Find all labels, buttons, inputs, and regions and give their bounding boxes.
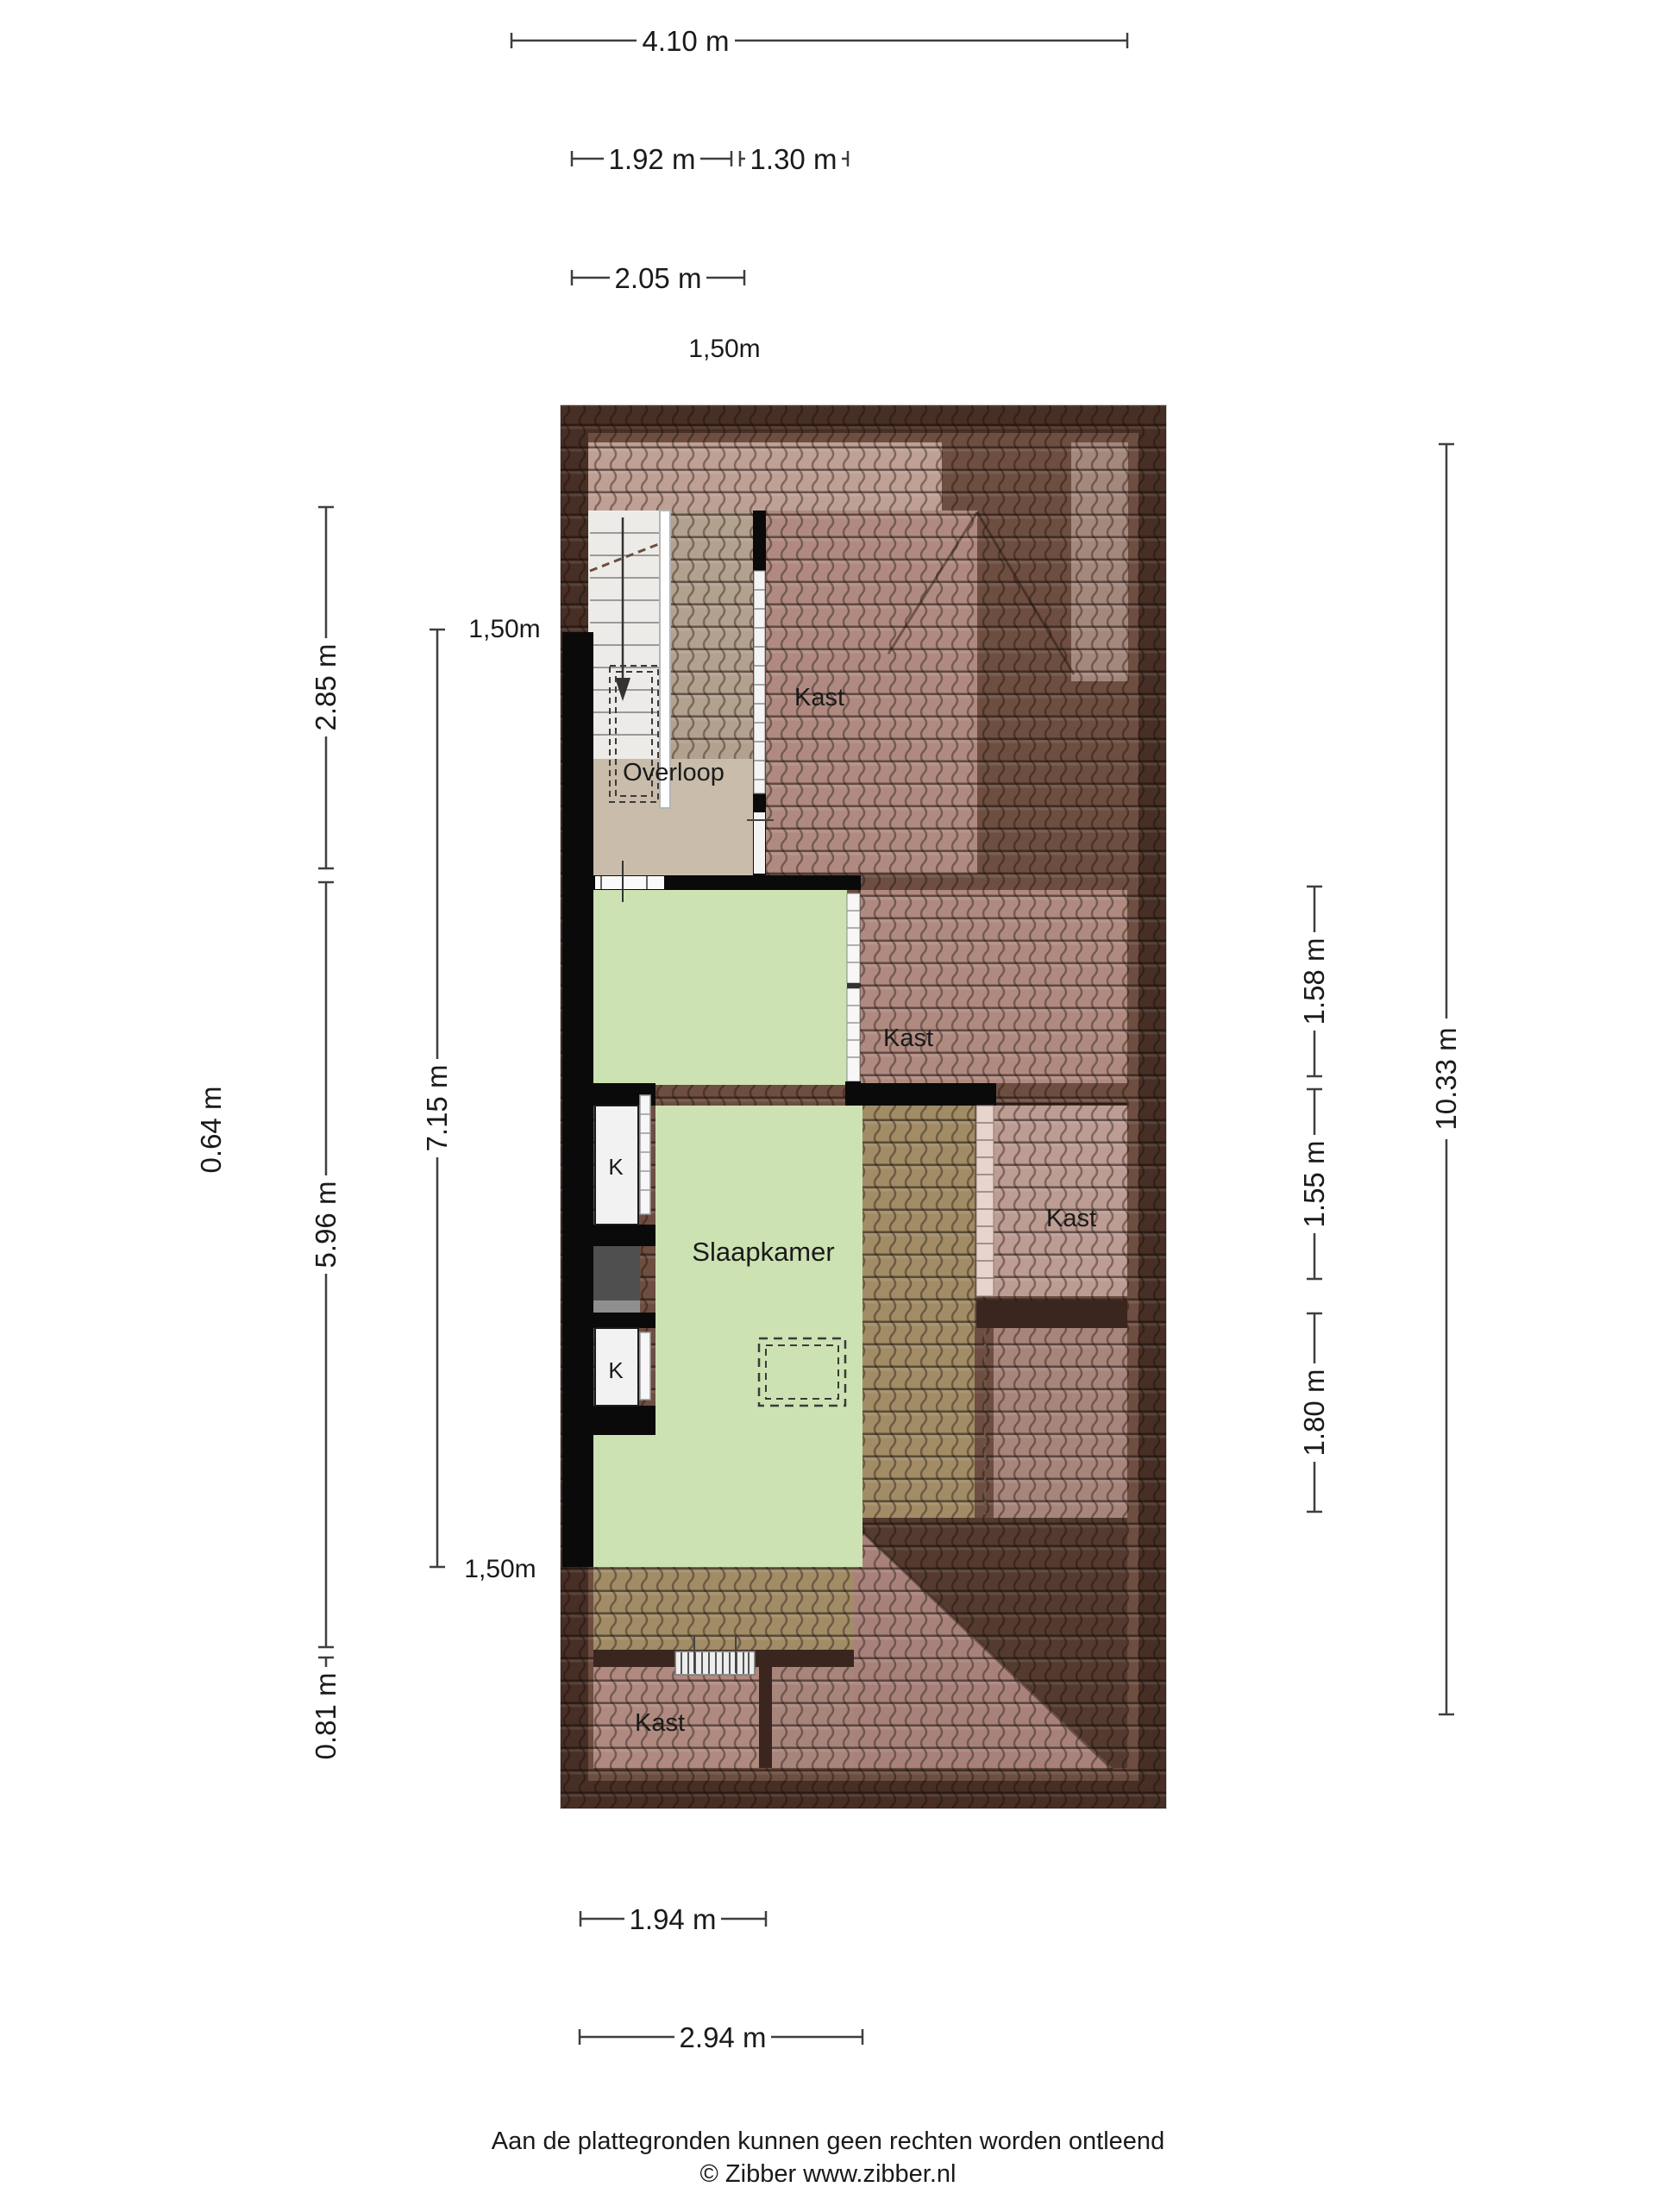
- dimension-bottom-294: 2.94 m: [580, 2021, 862, 2053]
- dimension-top-205: 2.05 m: [572, 262, 744, 294]
- window-slaapkamer-right-2: [847, 988, 860, 1081]
- dimension-label: 7.15 m: [421, 1065, 453, 1152]
- dimension-label: 1.92 m: [609, 143, 696, 175]
- dimension-label: 4.10 m: [643, 25, 730, 57]
- closet-window-strip: [640, 1095, 650, 1214]
- window-mullion: [847, 983, 860, 988]
- dimension-left-715: 7.15 m: [421, 630, 453, 1567]
- dimension-label: 1.94 m: [630, 1903, 717, 1935]
- dimension-bottom-194: 1.94 m: [580, 1903, 766, 1935]
- dimension-top-410: 4.10 m: [511, 25, 1127, 57]
- footer-copyright: © Zibber www.zibber.nl: [700, 2160, 957, 2188]
- wall-kast-bottom: [759, 1664, 772, 1768]
- wall-kast-right-lower: [976, 1300, 1127, 1328]
- contour-label-top: 1,50m: [688, 335, 760, 363]
- closet-label-k-upper: K: [608, 1154, 624, 1180]
- dimension-label: 2.94 m: [680, 2021, 767, 2053]
- room-label-slaapkamer: Slaapkamer: [692, 1237, 834, 1267]
- dimension-label: 1.55 m: [1298, 1141, 1330, 1228]
- slaapkamer-floor-mid: [655, 1106, 862, 1435]
- dimension-label: 2.05 m: [615, 262, 702, 294]
- dimension-left-064: 0.64 m: [195, 1087, 227, 1174]
- closet-window-strip: [640, 1332, 650, 1400]
- dimension-label: 0.64 m: [195, 1087, 227, 1174]
- slaapkamer-floor-bottom: [593, 1435, 862, 1567]
- closet-label-k-lower: K: [608, 1357, 624, 1383]
- room-label-kast-right-lower: Kast: [1046, 1205, 1096, 1232]
- dimension-top-192: 1.92 m: [572, 143, 731, 175]
- room-label-kast-right-upper: Kast: [883, 1025, 933, 1052]
- floorplan-canvas: Overloop Kast Slaapkamer Kast Kast Kast …: [0, 0, 1656, 2208]
- wall-corner-block: [845, 1081, 861, 1106]
- dimension-label: 0.81 m: [310, 1673, 342, 1760]
- duct-box-light-edge: [593, 1300, 640, 1313]
- room-label-overloop: Overloop: [623, 759, 724, 786]
- closet-wall: [593, 1406, 655, 1435]
- dimension-left-285: 2.85 m: [310, 507, 342, 868]
- dimension-label: 2.85 m: [310, 644, 342, 731]
- dimension-right-1033: 10.33 m: [1430, 444, 1462, 1714]
- dimension-right-155: 1.55 m: [1298, 1089, 1330, 1279]
- dimension-label: 1.80 m: [1298, 1369, 1330, 1457]
- closet-wall: [593, 1313, 655, 1328]
- contour-label-left-lower: 1,50m: [464, 1555, 536, 1583]
- knee-wall-window-strip: [976, 1106, 994, 1296]
- window-slaapkamer-right-1: [847, 893, 860, 983]
- room-label-kast-top: Kast: [794, 684, 844, 711]
- slaapkamer-floor-top: [593, 890, 847, 1085]
- dimension-right-158: 1.58 m: [1298, 887, 1330, 1076]
- dimension-label: 5.96 m: [310, 1181, 342, 1269]
- dimension-top-130: 1.30 m: [740, 143, 848, 175]
- dimension-label: 10.33 m: [1430, 1027, 1462, 1130]
- door-opening-kast: [754, 812, 765, 874]
- contour-label-left-upper: 1,50m: [468, 615, 540, 643]
- dimension-label: 1.30 m: [750, 143, 837, 175]
- dimension-left-081: 0.81 m: [310, 1657, 342, 1765]
- dimension-left-596: 5.96 m: [310, 882, 342, 1647]
- wall-kast-right-upper: [861, 1083, 996, 1106]
- dimension-label: 1.58 m: [1298, 938, 1330, 1025]
- window-overloop-slaapkamer: [595, 876, 664, 889]
- dimension-right-180: 1.80 m: [1298, 1313, 1330, 1512]
- footer-disclaimer: Aan de plattegronden kunnen geen rechten…: [492, 2127, 1164, 2155]
- wall-left: [562, 632, 593, 1567]
- closet-wall: [593, 1225, 655, 1246]
- room-label-kast-bottom: Kast: [635, 1709, 685, 1737]
